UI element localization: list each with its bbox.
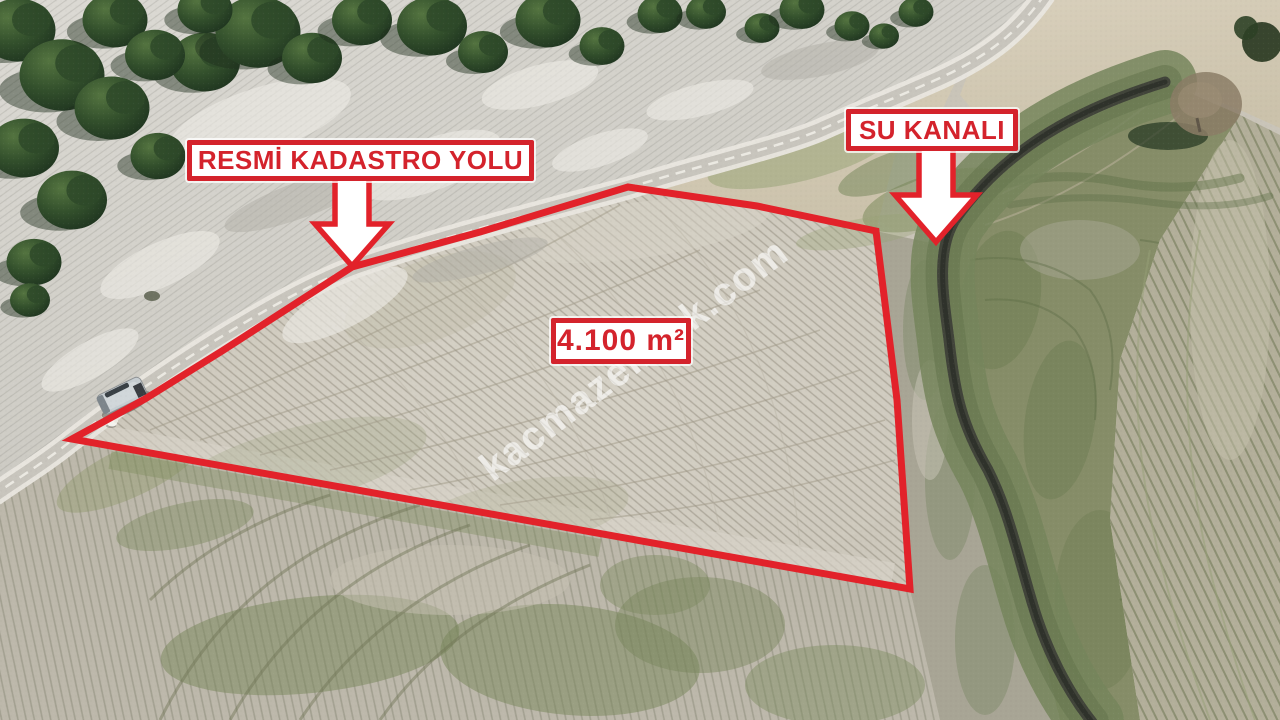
canal-label: SU KANALI [846, 109, 1018, 151]
parcel-area-text: 4.100 m² [557, 324, 685, 358]
canal-label-text: SU KANALI [859, 115, 1005, 146]
road-label-text: RESMİ KADASTRO YOLU [198, 145, 523, 176]
parcel-area-label: 4.100 m² [551, 318, 691, 364]
road-label: RESMİ KADASTRO YOLU [187, 140, 534, 181]
aerial-photo: kacmazemlak.com RESMİ KADASTRO YOLU SU K… [0, 0, 1280, 720]
